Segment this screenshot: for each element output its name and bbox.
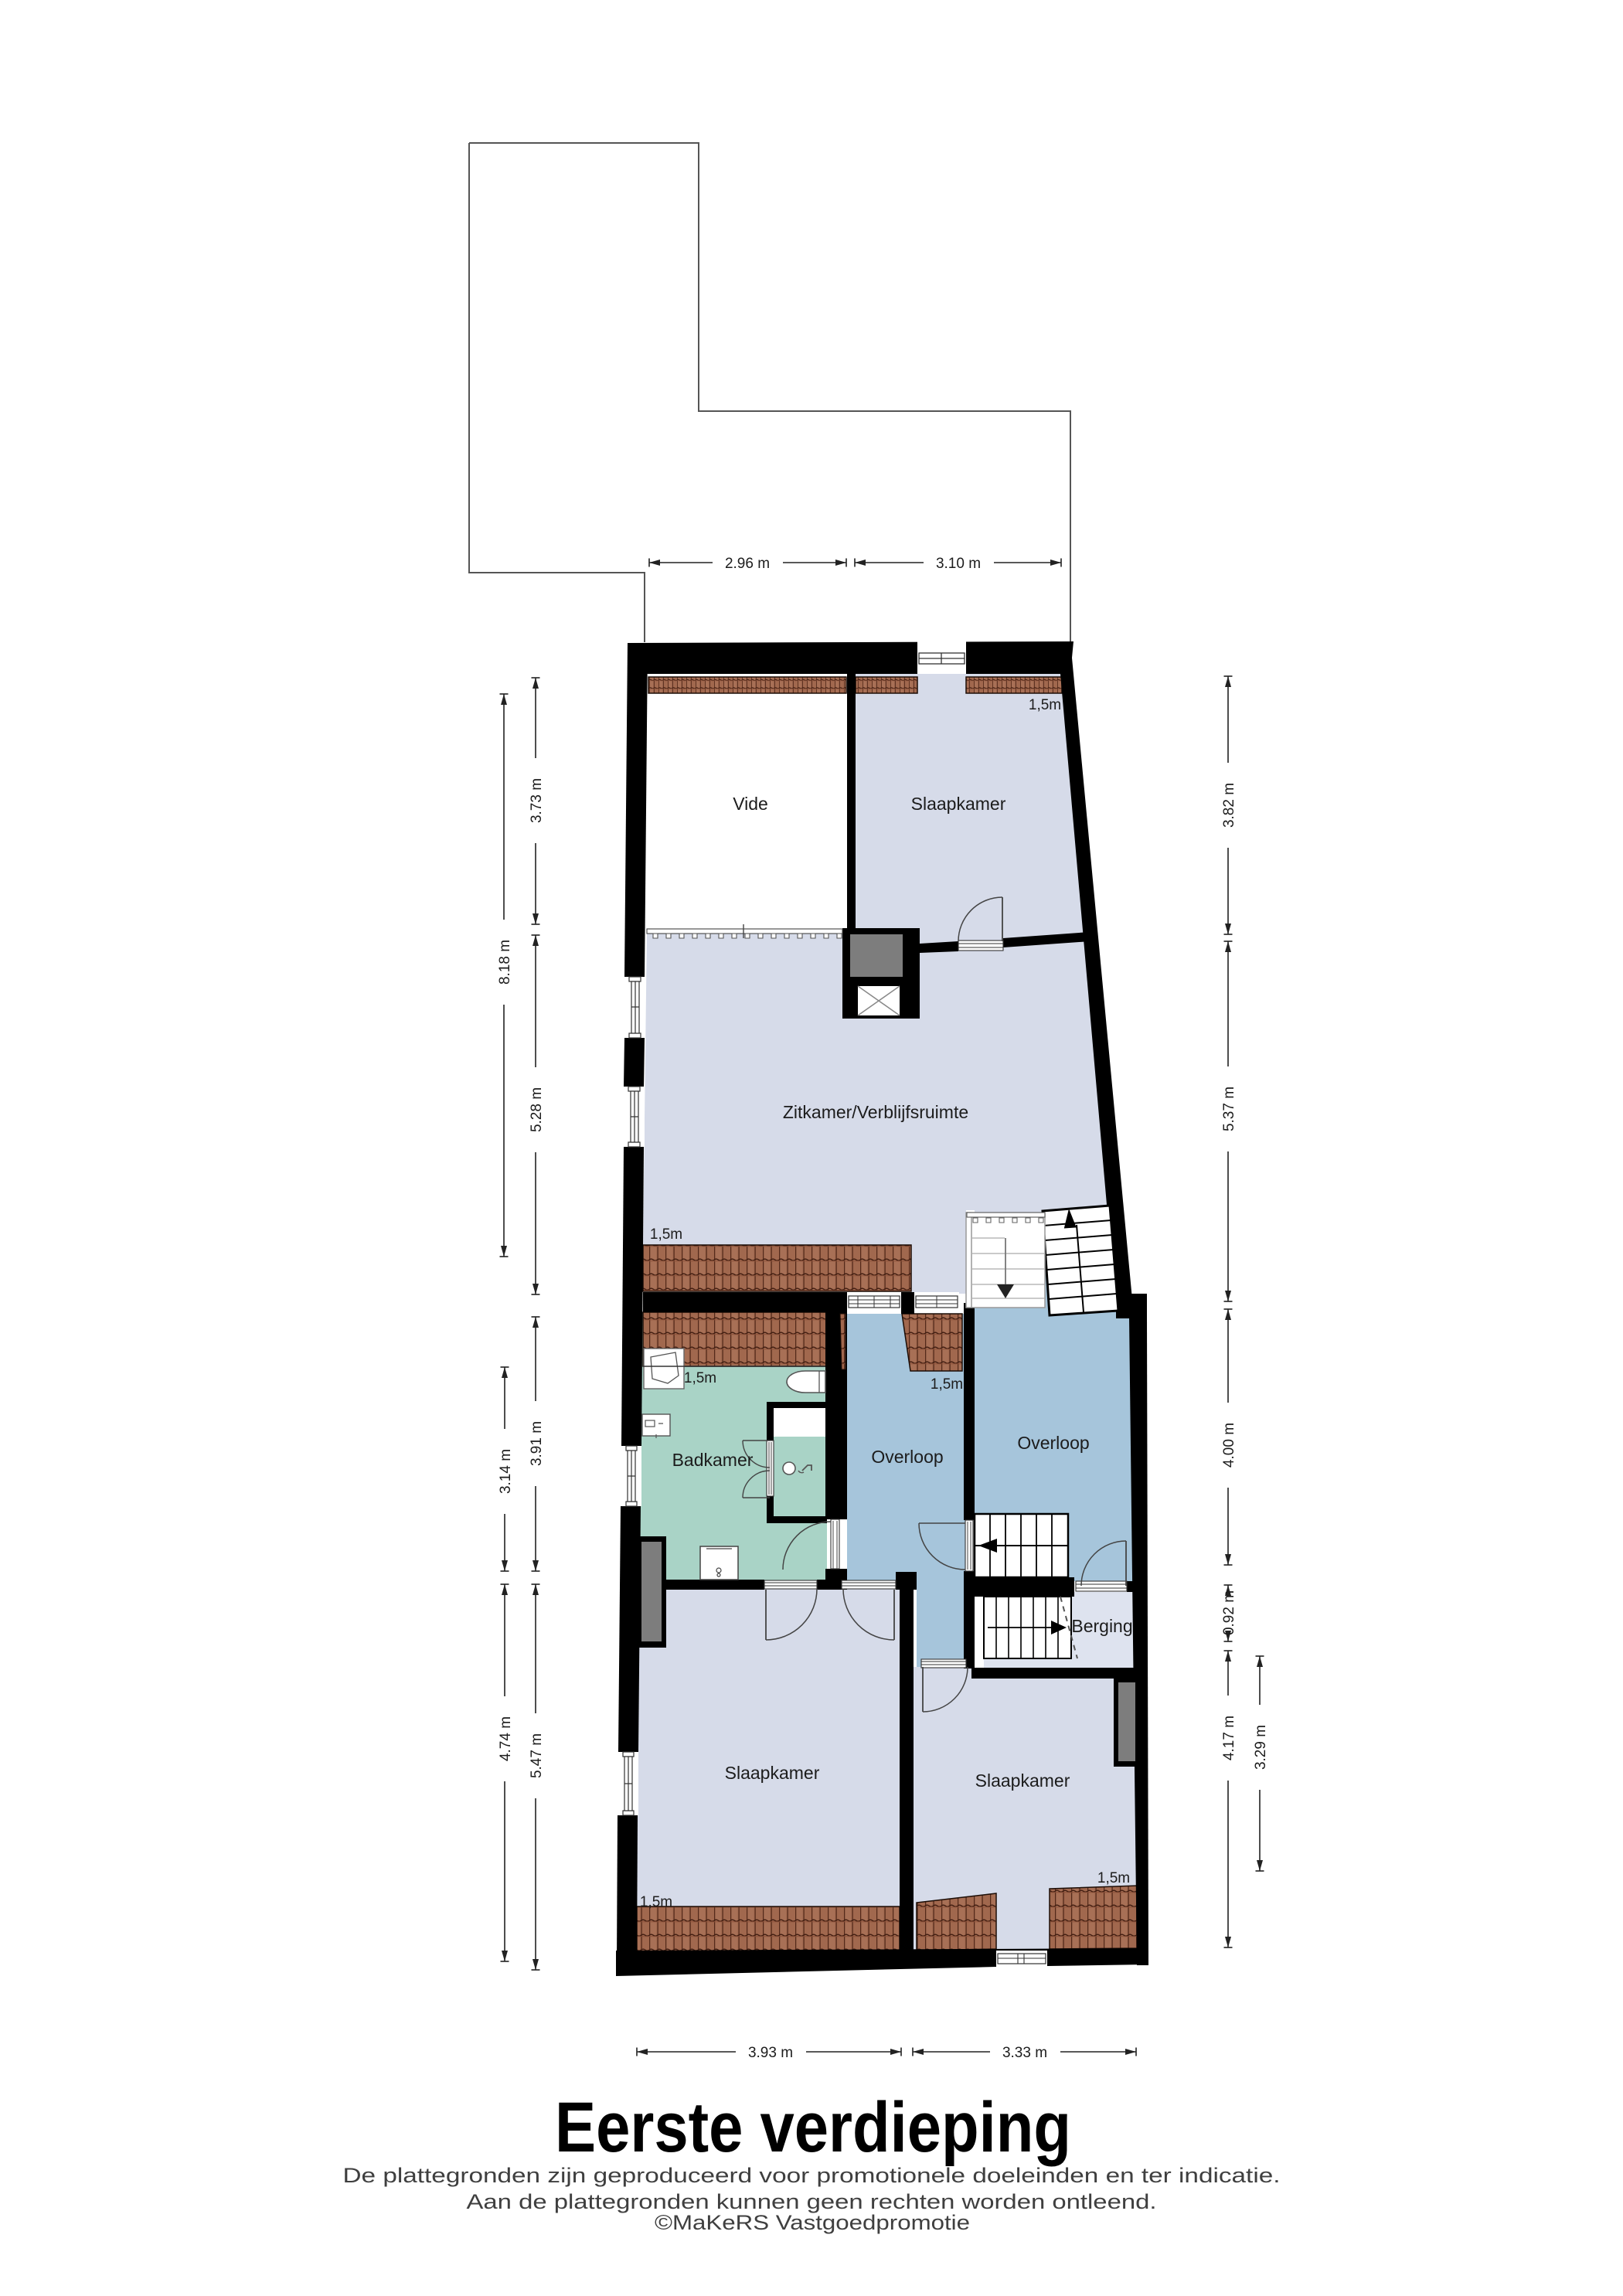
svg-text:1,5m: 1,5m — [640, 1894, 672, 1910]
svg-text:De plattegronden zijn geproduc: De plattegronden zijn geproduceerd voor … — [343, 2164, 1281, 2187]
svg-text:1,5m: 1,5m — [931, 1376, 963, 1393]
svg-text:3.91 m: 3.91 m — [529, 1421, 545, 1466]
svg-text:8.18 m: 8.18 m — [497, 940, 513, 985]
svg-text:5.28 m: 5.28 m — [529, 1087, 545, 1132]
svg-text:5.47 m: 5.47 m — [529, 1733, 545, 1778]
svg-text:3.33 m: 3.33 m — [1002, 2045, 1047, 2061]
svg-text:5.37 m: 5.37 m — [1221, 1087, 1237, 1131]
svg-text:1,5m: 1,5m — [684, 1370, 716, 1386]
svg-text:1,5m: 1,5m — [1029, 697, 1061, 713]
svg-text:Aan de plattegronden kunnen ge: Aan de plattegronden kunnen geen rechten… — [467, 2190, 1157, 2213]
svg-text:3.14 m: 3.14 m — [498, 1449, 514, 1494]
svg-text:3.29 m: 3.29 m — [1253, 1725, 1269, 1770]
svg-text:Slaapkamer: Slaapkamer — [911, 794, 1006, 814]
svg-text:Slaapkamer: Slaapkamer — [975, 1770, 1070, 1791]
svg-text:Eerste verdieping: Eerste verdieping — [555, 2088, 1071, 2167]
svg-text:0.92 m: 0.92 m — [1221, 1590, 1237, 1635]
svg-text:Overloop: Overloop — [871, 1447, 943, 1467]
svg-text:1,5m: 1,5m — [650, 1226, 682, 1243]
svg-text:3.10 m: 3.10 m — [936, 556, 981, 572]
svg-text:Vide: Vide — [733, 794, 768, 814]
svg-text:Badkamer: Badkamer — [672, 1450, 754, 1470]
svg-text:Berging: Berging — [1071, 1616, 1132, 1636]
svg-text:3.93 m: 3.93 m — [748, 2045, 793, 2061]
svg-text:Zitkamer/Verblijfsruimte: Zitkamer/Verblijfsruimte — [783, 1102, 968, 1122]
svg-text:4.17 m: 4.17 m — [1221, 1716, 1237, 1760]
svg-text:©MaKeRS Vastgoedpromotie: ©MaKeRS Vastgoedpromotie — [655, 2211, 970, 2234]
svg-text:3.82 m: 3.82 m — [1221, 783, 1237, 828]
svg-text:Overloop: Overloop — [1017, 1433, 1089, 1453]
svg-text:1,5m: 1,5m — [1097, 1870, 1130, 1886]
svg-text:4.00 m: 4.00 m — [1221, 1423, 1237, 1468]
svg-text:4.74 m: 4.74 m — [498, 1716, 514, 1761]
svg-text:2.96 m: 2.96 m — [725, 556, 770, 572]
svg-text:Slaapkamer: Slaapkamer — [725, 1763, 820, 1783]
svg-text:3.73 m: 3.73 m — [529, 778, 545, 823]
